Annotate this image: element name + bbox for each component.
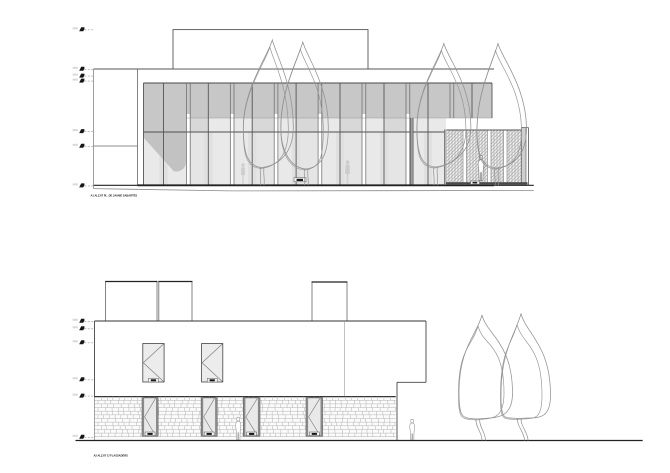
- svg-text:A2 ALÇAT C/ FLASSADERS: A2 ALÇAT C/ FLASSADERS: [94, 453, 129, 457]
